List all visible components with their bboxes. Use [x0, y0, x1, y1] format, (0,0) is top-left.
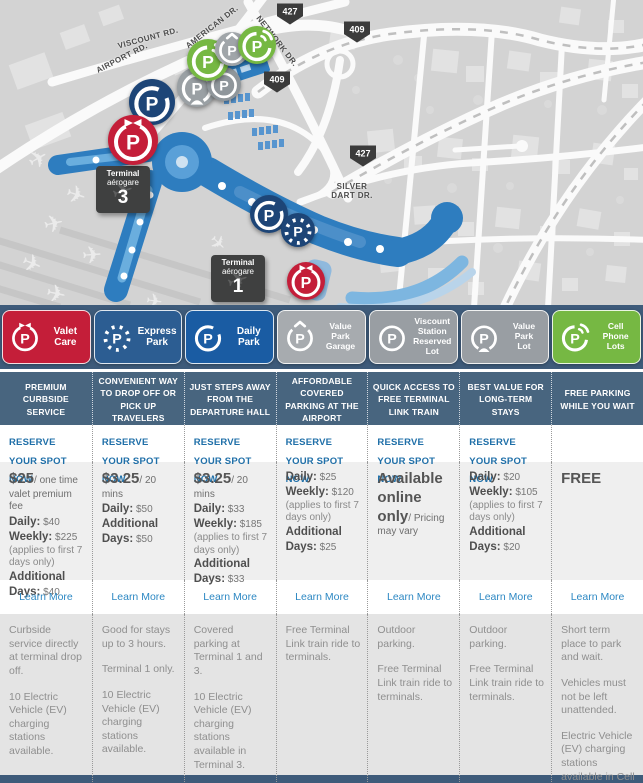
- column-header-cell-phone-lots: FREE PARKING WHILE YOU WAIT: [551, 372, 643, 427]
- svg-text:P: P: [126, 132, 140, 155]
- parking-legend: PValet CarePExpress ParkPDaily ParkPValu…: [0, 305, 643, 369]
- description-paragraph: Curbside service directly at terminal dr…: [9, 624, 85, 679]
- svg-text:P: P: [571, 331, 581, 347]
- description-cell-valet-care: Curbside service directly at terminal dr…: [0, 614, 92, 783]
- rate-value: $105: [513, 487, 538, 498]
- description-paragraph: Outdoor parking.: [469, 624, 544, 651]
- description-cell-cell-phone-lots: Short term place to park and wait.Vehicl…: [551, 614, 643, 783]
- legend-badge-label: Value Park Lot: [501, 322, 549, 351]
- learn-cell-express-park: Learn More: [92, 580, 184, 614]
- price-lead-line: $25/ one time valet premium fee: [9, 470, 85, 514]
- price-rate-line: Additional Days: $50: [102, 517, 177, 547]
- price-amount: $3.25: [102, 470, 140, 487]
- price-note: (applies to first 7 days only): [194, 532, 269, 557]
- description-paragraph: Covered parking at Terminal 1 and 3.: [194, 624, 269, 679]
- price-lead-line: FREE: [561, 470, 636, 489]
- price-amount: $3.25: [194, 470, 232, 487]
- legend-badge-label: Daily Park: [225, 326, 273, 349]
- valet-parking-icon: P: [287, 262, 325, 300]
- pricing-cell-value-park-garage: Daily: $25Weekly: $120(applies to first …: [276, 462, 368, 600]
- legend-badge-label: Value Park Garage: [317, 322, 365, 351]
- learn-cell-viscount-station-reserved-lot: Learn More: [367, 580, 459, 614]
- daily-parking-icon: P: [191, 320, 225, 354]
- rate-value: $25: [317, 472, 336, 483]
- column-header-viscount-station-reserved-lot: QUICK ACCESS TO FREE TERMINAL LINK TRAIN: [367, 372, 459, 427]
- reserve-row: RESERVE YOUR SPOT NOWRESERVE YOUR SPOT N…: [0, 425, 643, 462]
- svg-text:P: P: [295, 331, 305, 347]
- terminal-label: Terminalaérogare✈1: [211, 255, 265, 302]
- pricing-cell-daily-park: $3.25/ 20 minsDaily: $33Weekly: $185(app…: [184, 462, 276, 600]
- price-rate-line: Weekly: $225: [9, 530, 85, 545]
- description-paragraph: 10 Electric Vehicle (EV) charging statio…: [194, 691, 269, 773]
- svg-text:P: P: [202, 52, 214, 72]
- garage-parking-icon: P: [283, 320, 317, 354]
- learn-more-link[interactable]: Learn More: [19, 591, 73, 603]
- price-amount: $25: [9, 470, 34, 487]
- rate-label: Daily:: [9, 516, 40, 528]
- map-base-graphic: ✈ ✈ ✈ ✈ ✈ ✈ ✈ ✈: [0, 0, 643, 305]
- rate-value: $50: [133, 534, 152, 545]
- cell-parking-icon: P: [558, 320, 592, 354]
- learn-more-link[interactable]: Learn More: [479, 591, 533, 603]
- rate-label: Daily:: [469, 471, 500, 483]
- price-note: (applies to first 7 days only): [469, 500, 544, 525]
- valet-parking-icon: P: [8, 320, 42, 354]
- rate-value: $120: [329, 487, 354, 498]
- description-paragraph: 10 Electric Vehicle (EV) charging statio…: [9, 691, 85, 759]
- price-rate-line: Additional Days: $20: [469, 525, 544, 555]
- description-row: Curbside service directly at terminal dr…: [0, 614, 643, 775]
- legend-badge-cell-phone-lots[interactable]: PCell Phone Lots: [552, 310, 641, 364]
- description-cell-express-park: Good for stays up to 3 hours.Terminal 1 …: [92, 614, 184, 783]
- description-paragraph: Vehicles must not be left unattended.: [561, 677, 636, 718]
- rate-value: $225: [52, 532, 77, 543]
- column-header-value-park-garage: AFFORDABLE COVERED PARKING AT THE AIRPOR…: [276, 372, 368, 427]
- map-marker-valet-care-t1[interactable]: P: [287, 262, 325, 300]
- legend-badge-value-park-garage[interactable]: PValue Park Garage: [277, 310, 366, 364]
- legend-badge-label: Viscount Station Reserved Lot: [409, 317, 457, 356]
- svg-text:✈: ✈: [81, 241, 103, 270]
- column-header-valet-care: PREMIUM CURBSIDE SERVICE: [0, 372, 92, 427]
- pricing-cell-valet-care: $25/ one time valet premium feeDaily: $4…: [0, 462, 92, 600]
- rate-label: Daily:: [102, 503, 133, 515]
- description-paragraph: Terminal 1 only.: [102, 663, 177, 677]
- svg-text:P: P: [146, 95, 159, 116]
- price-rate-line: Daily: $25: [286, 470, 361, 485]
- svg-text:P: P: [204, 331, 214, 347]
- price-rate-line: Daily: $20: [469, 470, 544, 485]
- pricing-row: $25/ one time valet premium feeDaily: $4…: [0, 462, 643, 580]
- price-rate-line: Weekly: $105: [469, 485, 544, 500]
- description-cell-value-park-lot: Outdoor parking.Free Terminal Link train…: [459, 614, 551, 783]
- rate-label: Daily:: [194, 503, 225, 515]
- price-rate-line: Weekly: $120: [286, 485, 361, 500]
- rate-value: $40: [40, 517, 59, 528]
- description-paragraph: Short term place to park and wait.: [561, 624, 636, 665]
- learn-cell-value-park-garage: Learn More: [276, 580, 368, 614]
- cell-parking-icon: P: [238, 26, 276, 64]
- column-header-value-park-lot: BEST VALUE FOR LONG-TERM STAYS: [459, 372, 551, 427]
- rate-label: Weekly:: [469, 486, 512, 498]
- description-cell-value-park-garage: Free Terminal Link train ride to termina…: [276, 614, 368, 783]
- rate-value: $25: [317, 542, 336, 553]
- legend-badge-label: Valet Care: [42, 326, 90, 349]
- legend-badge-value-park-lot[interactable]: PValue Park Lot: [461, 310, 550, 364]
- learn-cell-daily-park: Learn More: [184, 580, 276, 614]
- column-header-express-park: CONVENIENT WAY TO DROP OFF OR PICK UP TR…: [92, 372, 184, 427]
- description-paragraph: Free Terminal Link train ride to termina…: [377, 663, 452, 704]
- svg-text:P: P: [191, 80, 202, 99]
- description-cell-daily-park: Covered parking at Terminal 1 and 3.10 E…: [184, 614, 276, 783]
- express-parking-icon: P: [281, 213, 315, 247]
- learn-more-link[interactable]: Learn More: [111, 591, 165, 603]
- svg-text:P: P: [264, 208, 275, 225]
- column-header-daily-park: JUST STEPS AWAY FROM THE DEPARTURE HALL: [184, 372, 276, 427]
- map-marker-express-park-t1[interactable]: P: [281, 213, 315, 247]
- value-lot-parking-icon: P: [467, 320, 501, 354]
- description-paragraph: Free Terminal Link train ride to termina…: [469, 663, 544, 704]
- description-paragraph: Electric Vehicle (EV) charging stations …: [561, 730, 636, 783]
- svg-text:P: P: [479, 331, 489, 347]
- svg-text:✈: ✈: [144, 288, 164, 305]
- terminal-label: Terminalaérogare✈3: [96, 166, 150, 213]
- rate-value: $20: [501, 542, 520, 553]
- svg-text:P: P: [252, 39, 263, 56]
- viscount-parking-icon: P: [375, 320, 409, 354]
- learn-more-row: Learn MoreLearn MoreLearn MoreLearn More…: [0, 580, 643, 614]
- price-rate-line: Daily: $40: [9, 515, 85, 530]
- rate-value: $185: [237, 519, 262, 530]
- price-lead-line: $3.25/ 20 mins: [102, 470, 177, 501]
- map-marker-cell-phone-lot-2[interactable]: P: [238, 26, 276, 64]
- parking-comparison-table: PREMIUM CURBSIDE SERVICECONVENIENT WAY T…: [0, 372, 643, 775]
- rate-value: $33: [225, 504, 244, 515]
- learn-more-link[interactable]: Learn More: [295, 591, 349, 603]
- legend-badge-label: Cell Phone Lots: [592, 322, 640, 351]
- terminal-number: 3: [101, 187, 145, 209]
- express-parking-icon: P: [100, 320, 134, 354]
- price-lead-line: Available online only/ Pricing may vary: [377, 470, 452, 539]
- table-header-row: PREMIUM CURBSIDE SERVICECONVENIENT WAY T…: [0, 372, 643, 425]
- svg-text:P: P: [301, 275, 312, 292]
- svg-text:P: P: [20, 331, 30, 347]
- learn-cell-cell-phone-lots: Learn More: [551, 580, 643, 614]
- pricing-cell-value-park-lot: Daily: $20Weekly: $105(applies to first …: [459, 462, 551, 600]
- terminal-number: 1: [216, 276, 260, 298]
- legend-badge-label: Express Park: [134, 326, 182, 349]
- svg-text:P: P: [293, 224, 303, 240]
- airport-map[interactable]: ✈ ✈ ✈ ✈ ✈ ✈ ✈ ✈ VISCOUNT RD.AMERICAN DR.…: [0, 0, 643, 305]
- pricing-cell-viscount-station-reserved-lot: Available online only/ Pricing may vary: [367, 462, 459, 600]
- svg-text:P: P: [112, 331, 122, 347]
- svg-text:P: P: [387, 331, 397, 347]
- rate-label: Daily:: [286, 471, 317, 483]
- learn-cell-value-park-lot: Learn More: [459, 580, 551, 614]
- price-note: (applies to first 7 days only): [9, 545, 85, 570]
- description-paragraph: Outdoor parking.: [377, 624, 452, 651]
- pricing-cell-cell-phone-lots: FREE: [551, 462, 643, 600]
- legend-badge-valet-care[interactable]: PValet Care: [2, 310, 91, 364]
- learn-cell-valet-care: Learn More: [0, 580, 92, 614]
- map-marker-valet-care-t3[interactable]: P: [108, 115, 158, 165]
- price-rate-line: Daily: $33: [194, 502, 269, 517]
- description-paragraph: 10 Electric Vehicle (EV) charging statio…: [102, 689, 177, 757]
- price-note: (applies to first 7 days only): [286, 500, 361, 525]
- valet-parking-icon: P: [108, 115, 158, 165]
- legend-badge-daily-park[interactable]: PDaily Park: [185, 310, 274, 364]
- price-rate-line: Weekly: $185: [194, 517, 269, 532]
- pricing-cell-express-park: $3.25/ 20 minsDaily: $50Additional Days:…: [92, 462, 184, 600]
- description-paragraph: Free Terminal Link train ride to termina…: [286, 624, 361, 665]
- rate-label: Weekly:: [286, 486, 329, 498]
- rate-label: Weekly:: [9, 531, 52, 543]
- road-label: SILVER DART DR.: [325, 182, 379, 200]
- rate-value: $50: [133, 504, 152, 515]
- price-rate-line: Daily: $50: [102, 502, 177, 517]
- learn-more-link[interactable]: Learn More: [387, 591, 441, 603]
- rate-label: Weekly:: [194, 518, 237, 530]
- airport-parking-page: ✈ ✈ ✈ ✈ ✈ ✈ ✈ ✈ VISCOUNT RD.AMERICAN DR.…: [0, 0, 643, 783]
- price-lead-line: $3.25/ 20 mins: [194, 470, 269, 501]
- learn-more-link[interactable]: Learn More: [203, 591, 257, 603]
- rate-value: $20: [501, 472, 520, 483]
- price-rate-line: Additional Days: $25: [286, 525, 361, 555]
- learn-more-link[interactable]: Learn More: [571, 591, 625, 603]
- description-cell-viscount-station-reserved-lot: Outdoor parking.Free Terminal Link train…: [367, 614, 459, 783]
- legend-badge-viscount-station-reserved-lot[interactable]: PViscount Station Reserved Lot: [369, 310, 458, 364]
- price-amount: FREE: [561, 470, 601, 487]
- description-paragraph: Good for stays up to 3 hours.: [102, 624, 177, 651]
- legend-badge-express-park[interactable]: PExpress Park: [94, 310, 183, 364]
- svg-text:P: P: [227, 43, 237, 59]
